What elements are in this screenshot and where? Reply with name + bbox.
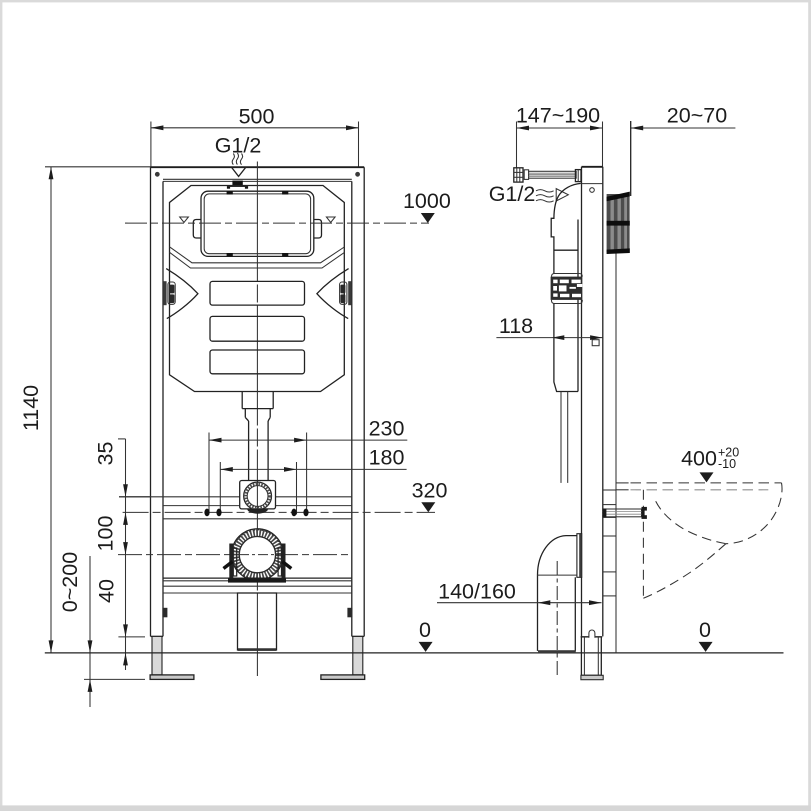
svg-text:320: 320: [412, 479, 448, 503]
svg-text:180: 180: [369, 446, 405, 470]
svg-text:35: 35: [94, 442, 118, 466]
svg-text:-10: -10: [718, 457, 736, 471]
svg-text:1140: 1140: [19, 385, 43, 431]
svg-text:40: 40: [95, 579, 119, 603]
svg-text:20~70: 20~70: [667, 104, 727, 128]
svg-text:0: 0: [699, 618, 711, 642]
svg-text:230: 230: [369, 417, 405, 441]
svg-text:100: 100: [94, 516, 118, 552]
svg-text:0~200: 0~200: [58, 552, 82, 612]
svg-text:140/160: 140/160: [438, 580, 516, 604]
svg-text:1000: 1000: [403, 189, 451, 213]
svg-text:118: 118: [499, 314, 533, 338]
svg-text:0: 0: [419, 618, 431, 642]
svg-text:400: 400: [681, 447, 717, 471]
svg-text:147~190: 147~190: [516, 104, 600, 128]
svg-text:G1/2: G1/2: [489, 182, 536, 206]
svg-text:500: 500: [239, 105, 275, 129]
